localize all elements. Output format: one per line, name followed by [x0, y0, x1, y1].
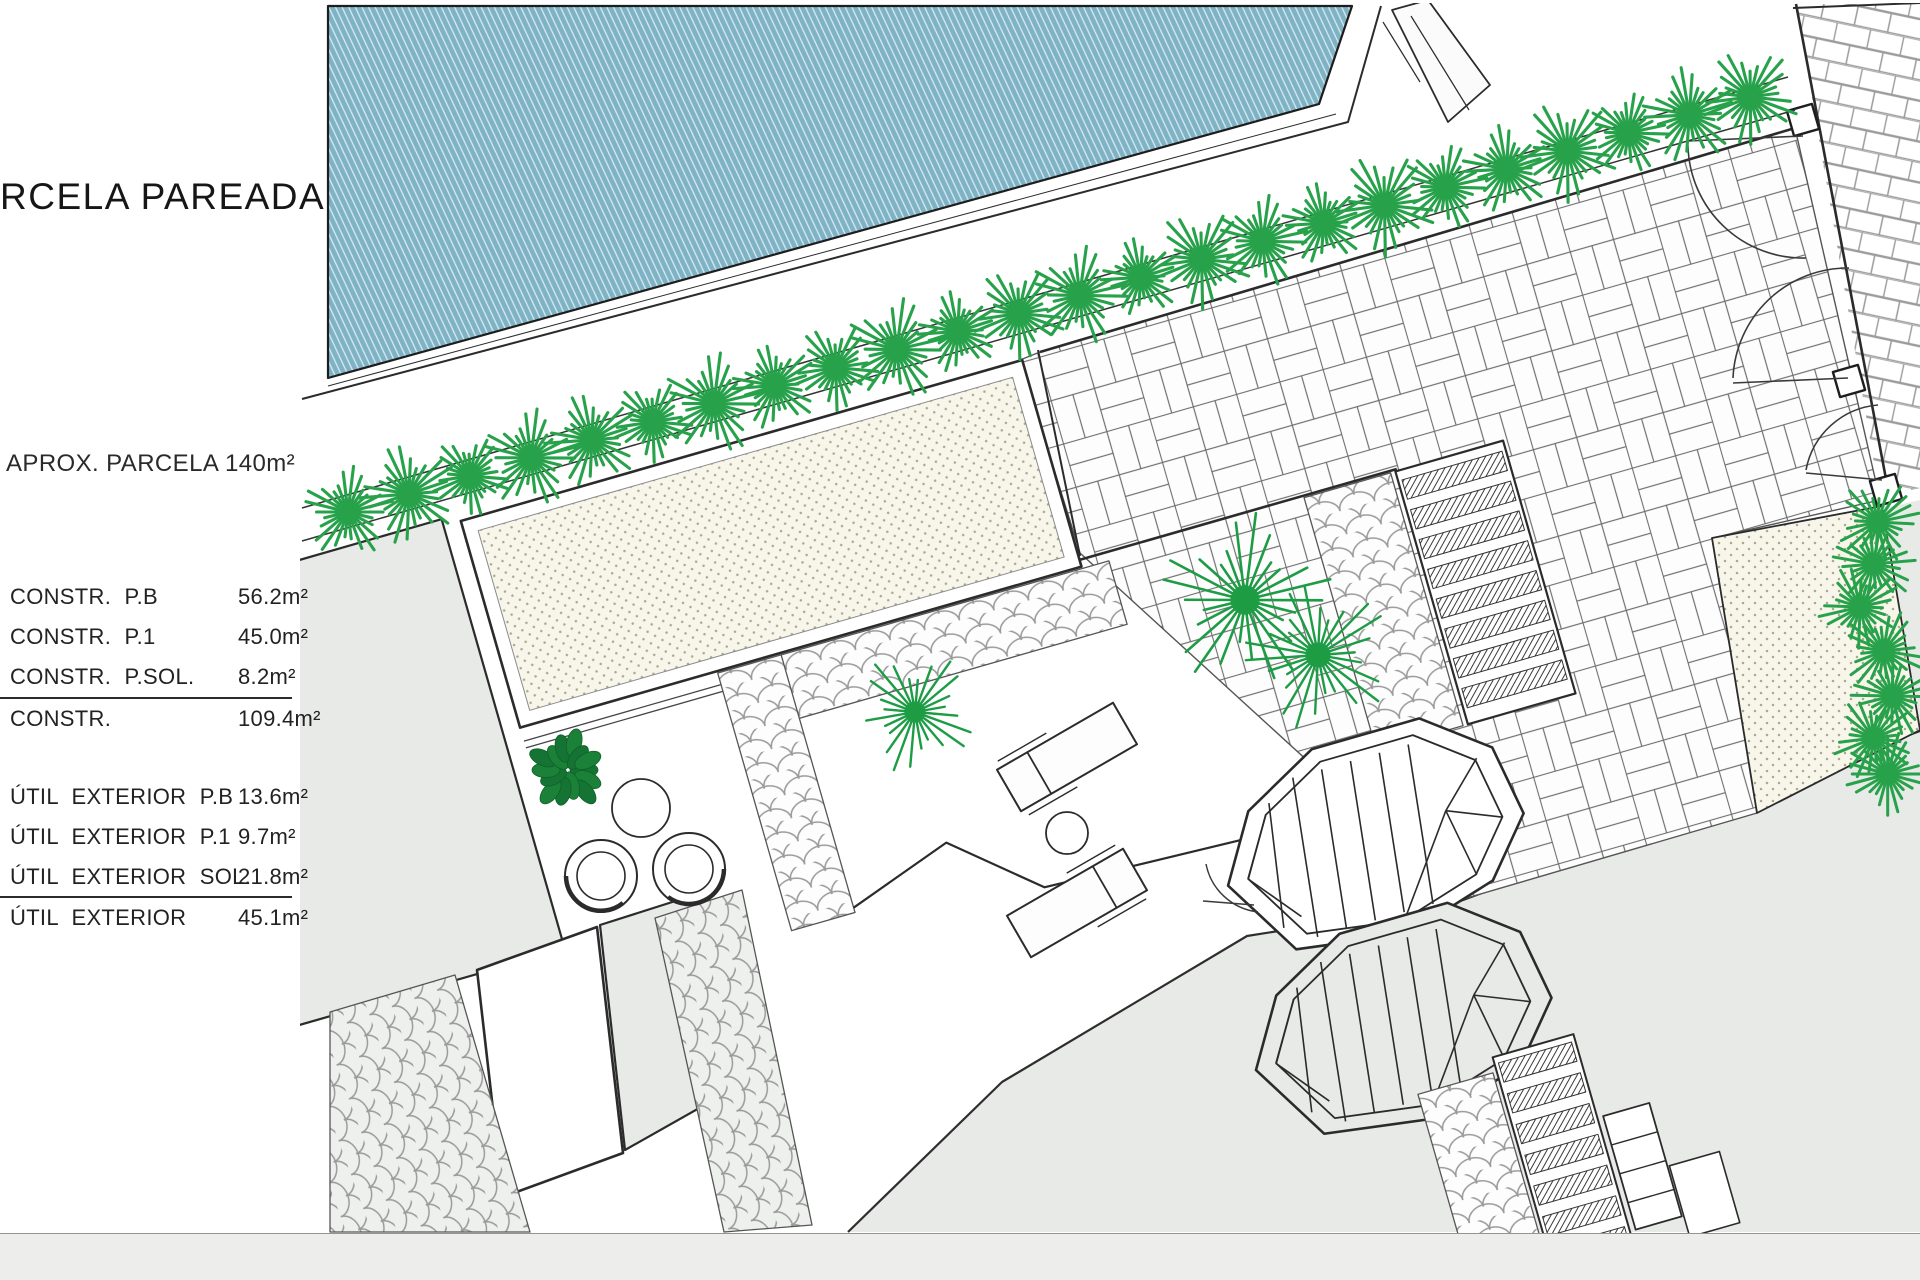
plant-starburst [1036, 246, 1127, 341]
chair-1 [565, 840, 637, 912]
legend-row-util-sol: ÚTIL EXTERIOR SOL. 21.8m² [10, 864, 251, 890]
wall-post-1 [1787, 104, 1819, 136]
legend-panel: RCELA PAREADA APROX. PARCELA 140m² CONST… [0, 0, 320, 1280]
sun-lounger-2 [1003, 843, 1150, 964]
row-value: 8.2m² [238, 664, 296, 690]
plant-starburst [918, 292, 992, 371]
row-value: 21.8m² [238, 864, 308, 890]
plant-starburst [1408, 146, 1487, 226]
row-label: ÚTIL EXTERIOR [10, 905, 186, 930]
round-table [612, 779, 670, 837]
parcel-note: APROX. PARCELA 140m² [6, 450, 295, 478]
plant-starburst [1283, 184, 1359, 261]
row-value: 9.7m² [238, 824, 296, 850]
floor-plan-page: RCELA PAREADA APROX. PARCELA 140m² CONST… [0, 0, 1920, 1280]
legend-divider-util [0, 896, 292, 898]
row-value: 13.6m² [238, 784, 308, 810]
legend-row-util-total: ÚTIL EXTERIOR 45.1m² [10, 905, 186, 931]
plant-starburst [1593, 94, 1668, 169]
plant-starburst [668, 353, 764, 449]
row-value: 45.1m² [238, 905, 308, 931]
plant-starburst [485, 409, 579, 502]
legend-row-util-pb: ÚTIL EXTERIOR P.B 13.6m² [10, 784, 233, 810]
plant-starburst [733, 346, 811, 427]
legend-row-constr-p1: CONSTR. P.1 45.0m² [10, 624, 156, 650]
legend-row-util-p1: ÚTIL EXTERIOR P.1 9.7m² [10, 824, 231, 850]
row-value: 45.0m² [238, 624, 308, 650]
page-footer-strip [0, 1234, 1920, 1280]
legend-row-constr-pb: CONSTR. P.B 56.2m² [10, 584, 158, 610]
row-value: 56.2m² [238, 584, 308, 610]
row-label: CONSTR. P.1 [10, 624, 156, 649]
page-title: RCELA PAREADA [0, 176, 325, 218]
sun-lounger-1 [993, 697, 1140, 818]
row-label: CONSTR. [10, 706, 111, 731]
row-label: ÚTIL EXTERIOR P.B [10, 784, 233, 809]
plant-starburst [851, 299, 947, 395]
plant-starburst [1643, 68, 1731, 160]
plant-starburst [615, 385, 691, 462]
row-label: ÚTIL EXTERIOR SOL. [10, 864, 251, 889]
row-value: 109.4m² [238, 706, 321, 732]
doormat [1383, 0, 1490, 122]
shrub-plant [527, 727, 604, 807]
legend-divider-constr [0, 697, 292, 699]
chair-2 [653, 833, 725, 905]
legend-row-constr-total: CONSTR. 109.4m² [10, 706, 111, 732]
row-label: ÚTIL EXTERIOR P.1 [10, 824, 231, 849]
row-label: CONSTR. P.B [10, 584, 158, 609]
wall-post-2 [1833, 365, 1865, 397]
row-label: CONSTR. P.SOL. [10, 664, 194, 689]
plant-starburst [545, 396, 632, 484]
side-table [1046, 812, 1088, 854]
legend-row-constr-psol: CONSTR. P.SOL. 8.2m² [10, 664, 194, 690]
